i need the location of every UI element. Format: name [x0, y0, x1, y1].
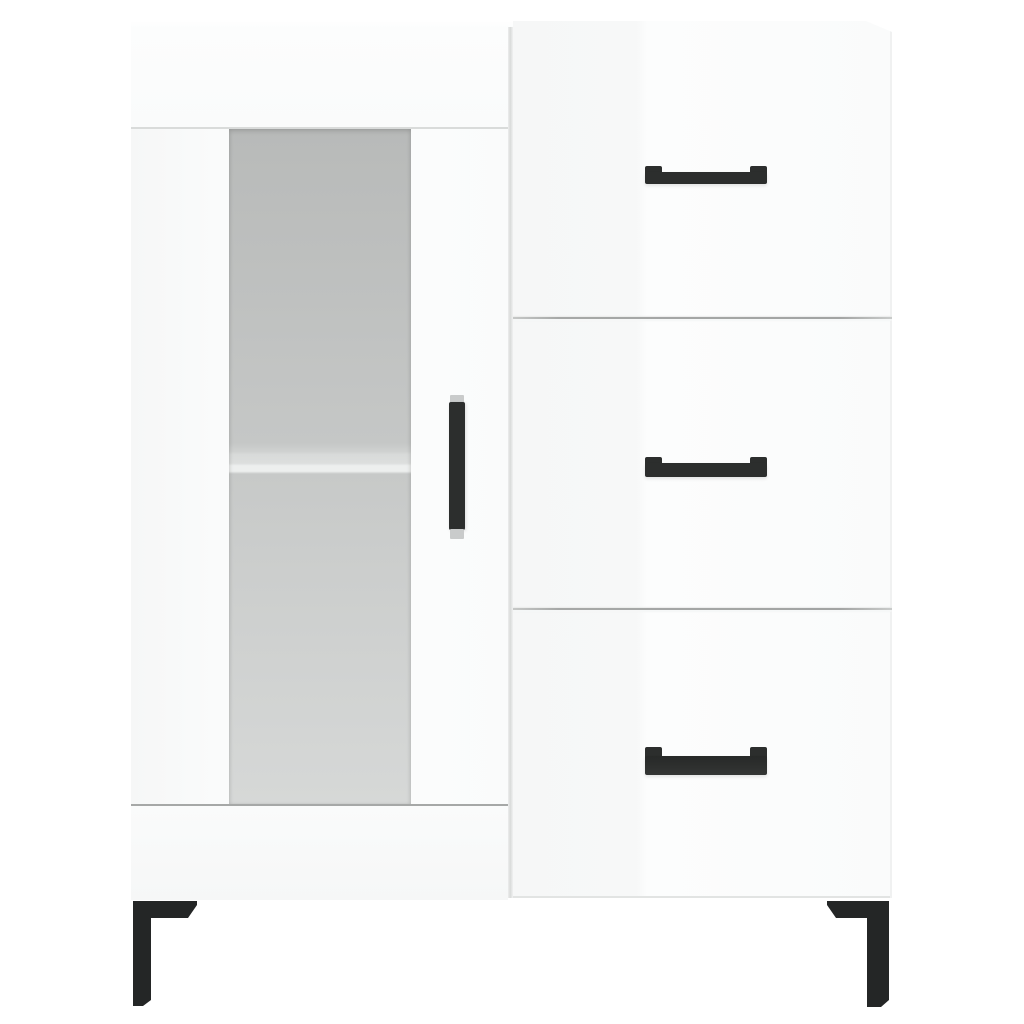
door-handle-mount-bottom — [450, 529, 464, 539]
glass-door — [131, 129, 508, 804]
handle-grip — [645, 463, 767, 477]
drawer-bottom — [513, 610, 892, 898]
product-photo — [0, 0, 1024, 1024]
drawer-middle — [513, 319, 892, 610]
handle-grip — [645, 172, 767, 184]
handle-grip — [645, 756, 767, 775]
door-top-rail — [131, 27, 508, 129]
shelf-edge — [229, 454, 411, 471]
glass-panel — [229, 129, 411, 804]
door-handle — [449, 395, 465, 539]
drawer-section — [513, 21, 892, 898]
sideboard-cabinet — [131, 21, 892, 898]
door-section — [131, 27, 508, 898]
drawer-handle — [645, 166, 767, 184]
drawer-top — [513, 21, 892, 319]
section-divider — [508, 27, 513, 898]
drawer-handle — [645, 457, 767, 477]
drawer-handle — [645, 747, 767, 775]
door-bottom-rail — [131, 804, 508, 900]
front-left-leg — [133, 901, 197, 1006]
front-right-leg — [827, 901, 889, 1007]
door-handle-grip — [449, 402, 465, 530]
